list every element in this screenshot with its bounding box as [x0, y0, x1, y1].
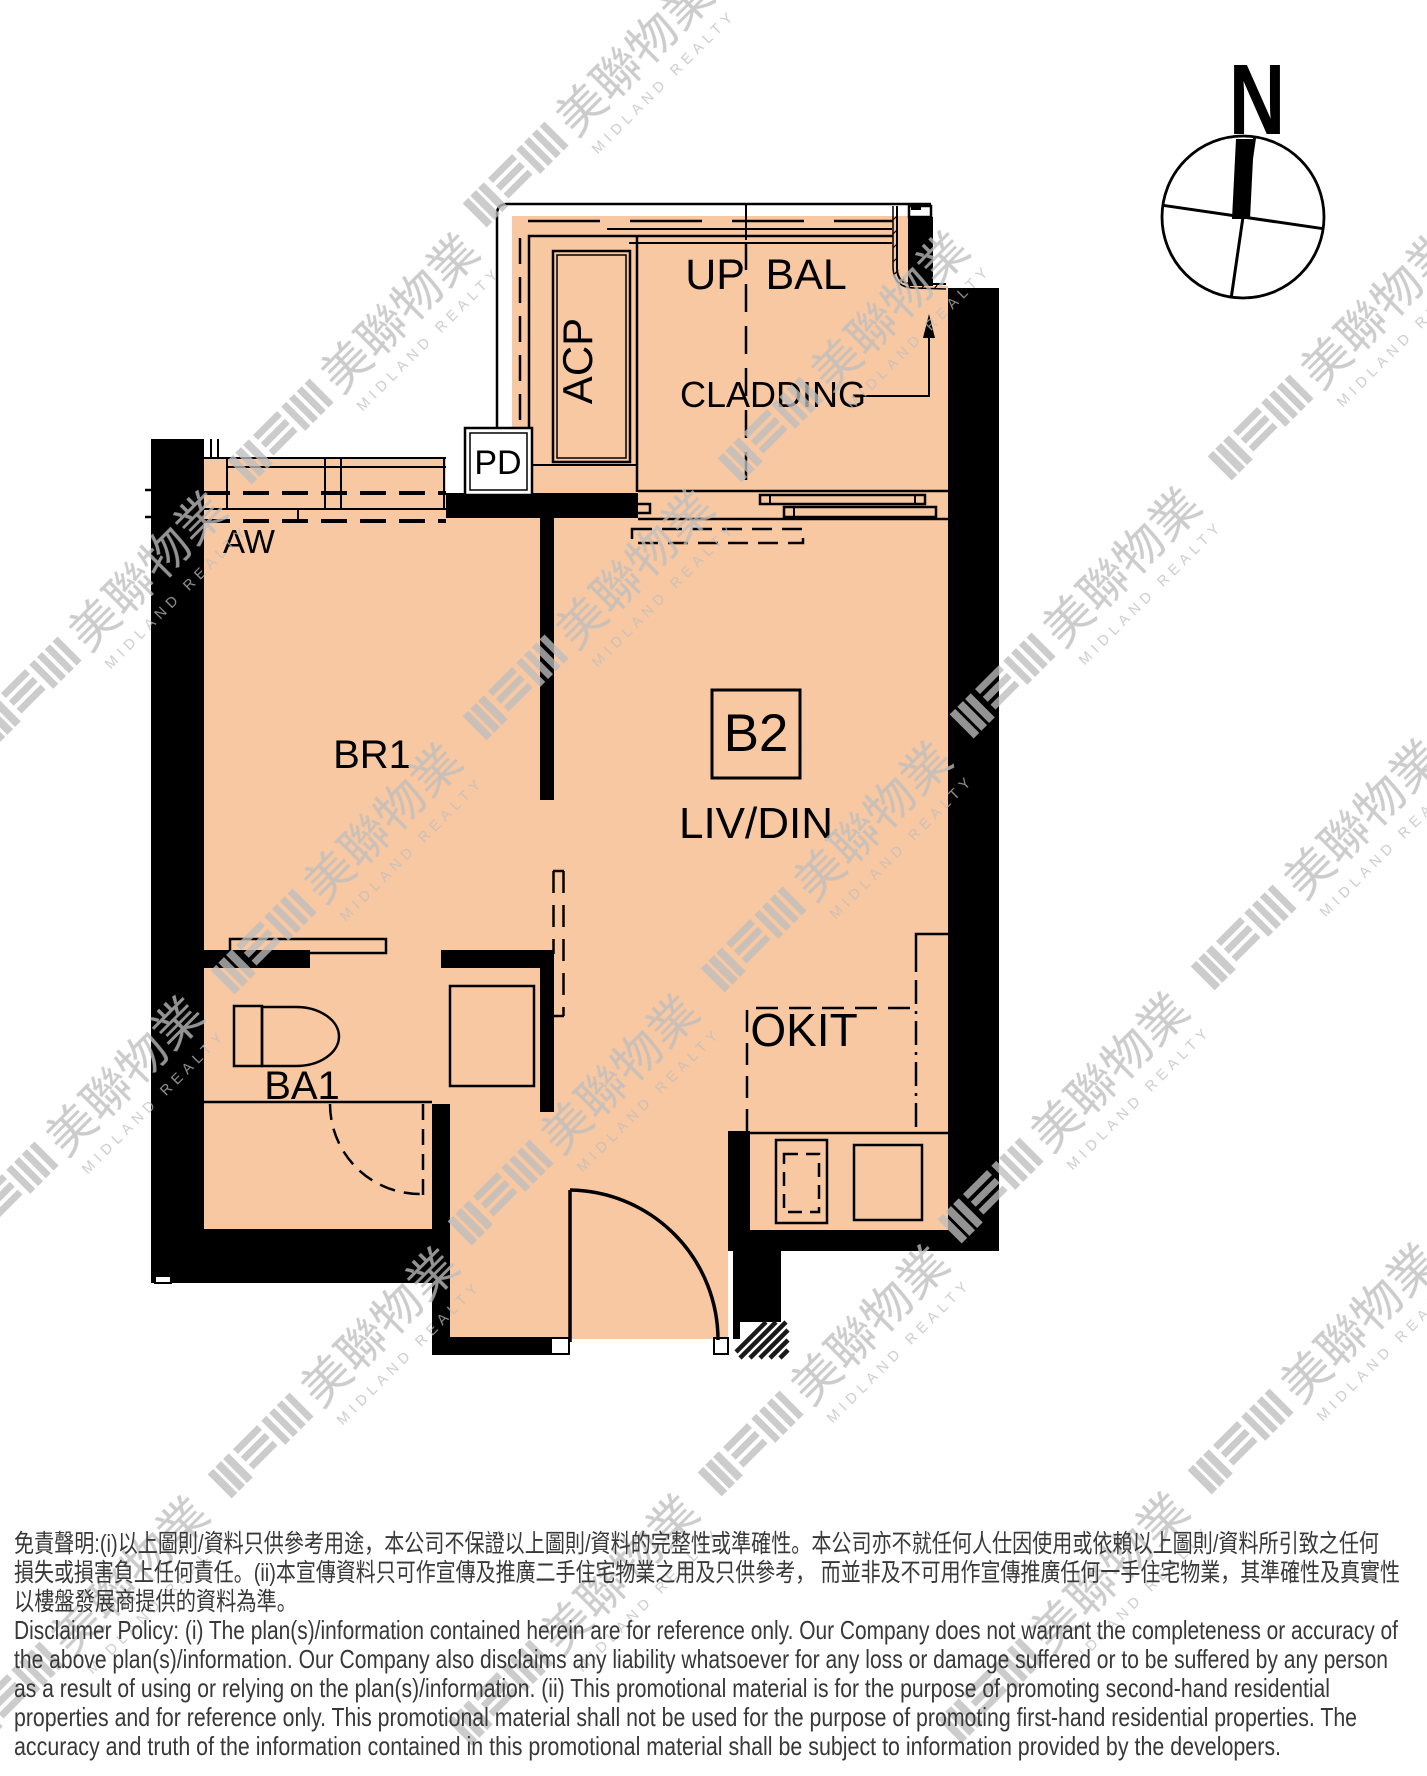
svg-text:accuracy and truth of the info: accuracy and truth of the information co…: [14, 1731, 1281, 1761]
svg-text:the above plan(s)/information.: the above plan(s)/information. Our Compa…: [14, 1644, 1388, 1674]
svg-text:UP BAL: UP BAL: [685, 251, 847, 299]
svg-text:BA1: BA1: [264, 1064, 340, 1108]
svg-text:properties and for reference o: properties and for reference only. This …: [14, 1702, 1357, 1732]
svg-text:B2: B2: [724, 704, 789, 763]
svg-text:ACP: ACP: [554, 318, 601, 404]
svg-text:as a result of using or relyin: as a result of using or relying on the p…: [14, 1673, 1330, 1703]
svg-text:N: N: [1229, 45, 1285, 157]
svg-text:PD: PD: [474, 444, 521, 482]
svg-text:LIV/DIN: LIV/DIN: [679, 799, 833, 848]
svg-text:免責聲明:(i)以上圖則/資料只供參考用途，本公司不保證以上: 免責聲明:(i)以上圖則/資料只供參考用途，本公司不保證以上圖則/資料的完整性或…: [14, 1530, 1379, 1558]
svg-text:Disclaimer Policy: (i) The pla: Disclaimer Policy: (i) The plan(s)/infor…: [14, 1615, 1399, 1645]
svg-text:OKIT: OKIT: [750, 1004, 857, 1056]
svg-text:以樓盤發展商提供的資料為準。: 以樓盤發展商提供的資料為準。: [14, 1588, 297, 1616]
svg-text:損失或損害負上任何責任。(ii)本宣傳資料只可作宣傳及推廣二: 損失或損害負上任何責任。(ii)本宣傳資料只可作宣傳及推廣二手住宅物業之用及只供…: [14, 1559, 1400, 1587]
